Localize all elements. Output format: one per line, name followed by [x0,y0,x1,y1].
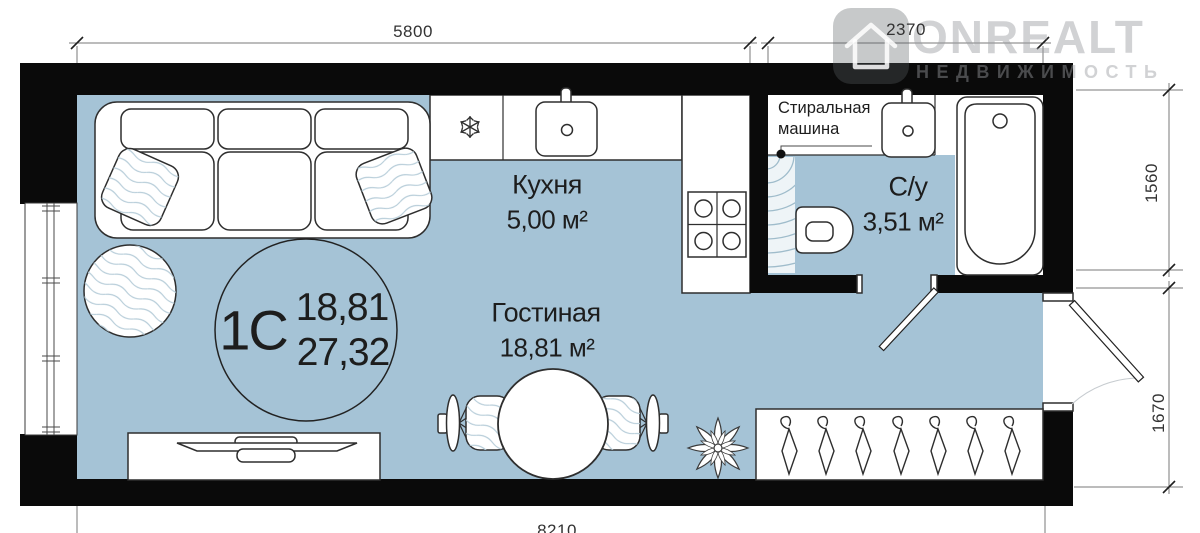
kitchen-area: 5,00 м² [507,205,588,236]
dim-bottom: 8210 [537,521,577,533]
wardrobe [756,409,1043,480]
kitchen-label: Кухня [512,170,582,201]
entry-door-arc [1072,378,1140,404]
watermark-tagline: НЕДВИЖИМОСТЬ [916,62,1164,83]
washer-label-line1: Стиральная [778,99,871,118]
living-area: 18,81 м² [500,333,595,364]
watermark-brand: ONREALT [912,10,1145,64]
dim-right-upper: 1560 [1142,163,1162,203]
dim-top-left: 5800 [393,22,433,42]
rug [84,245,176,337]
unit-type-label: 1С [219,298,287,363]
dim-top-right: 2370 [886,20,926,40]
sofa [95,102,435,238]
unit-living-area: 18,81 [296,286,389,330]
dining-table [498,369,608,479]
toilet [796,207,853,253]
plant [688,418,748,478]
entry-door-leaf [1069,301,1143,382]
bathroom-area: 3,51 м² [863,207,944,238]
living-label: Гостиная [491,298,600,329]
stove [688,192,746,257]
washer-label-line2: машина [778,120,839,139]
floorplan-canvas: ONREALT НЕДВИЖИМОСТЬ 5800 2370 1560 1670… [0,0,1200,533]
dim-right-lower: 1670 [1149,393,1169,433]
washing-machine-dot [777,150,786,159]
tv-stand [128,433,380,480]
window [25,203,77,435]
bathtub [957,97,1043,275]
bathroom-label: С/у [889,172,928,203]
unit-total-area: 27,32 [297,331,390,375]
